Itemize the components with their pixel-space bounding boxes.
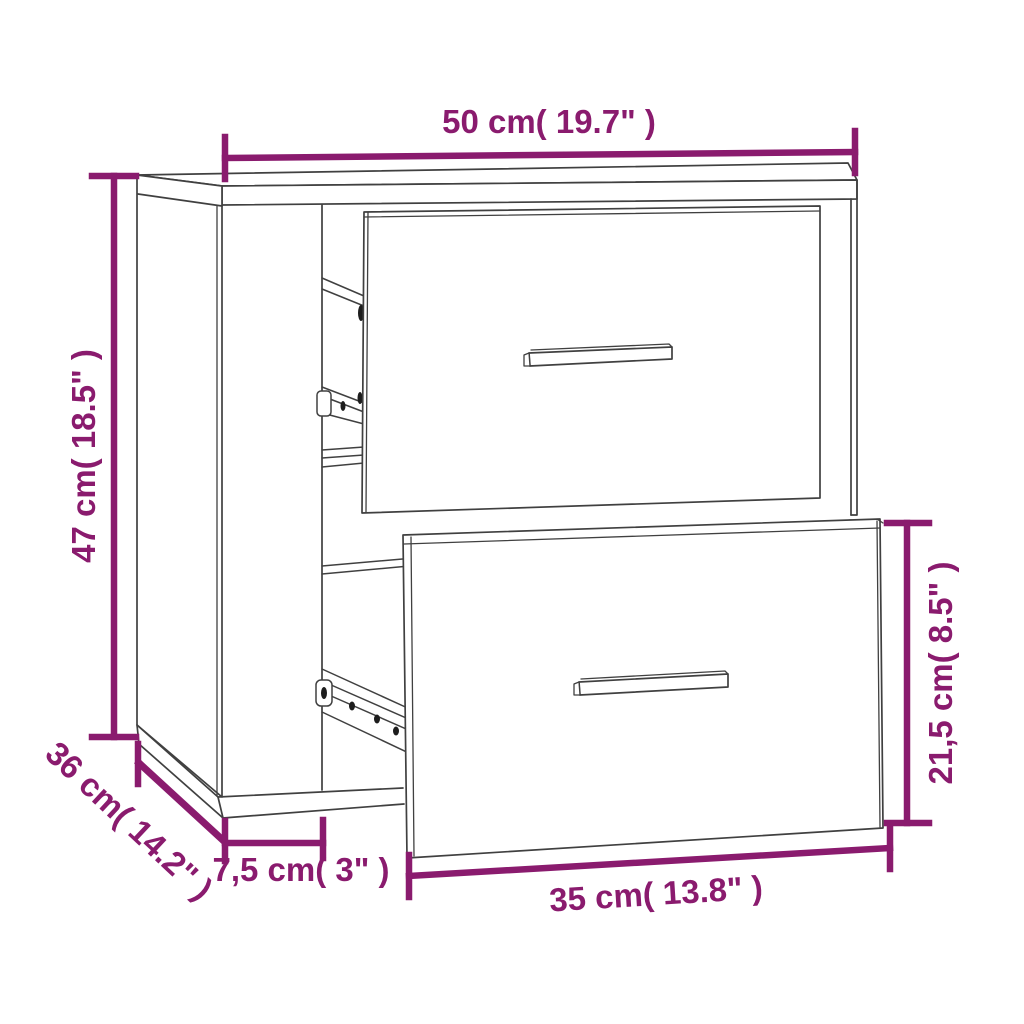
dimension-label-side-offset: 7,5 cm( 3" ): [212, 851, 389, 889]
slide-hole: [374, 715, 380, 724]
slide-roller: [321, 687, 327, 699]
bay-ledge-line: [322, 463, 364, 467]
bay-ledge-line: [322, 455, 364, 458]
slide-bracket: [317, 391, 331, 416]
top-drawer-handle-cap: [524, 353, 530, 366]
bottom-drawer-handle-cap: [574, 682, 580, 695]
dimension-label-overall-width: 50 cm( 19.7" ): [442, 103, 656, 141]
top-drawer: [362, 206, 820, 513]
dimension-label-drawer-height: 21,5 cm( 8.5" ): [922, 562, 960, 785]
dimension-diagram: 50 cm( 19.7" ) 47 cm( 18.5" ) 36 cm( 14.…: [0, 0, 1024, 1024]
slide-roller: [358, 392, 363, 404]
slide-hole: [393, 727, 399, 736]
bottom-drawer: [403, 519, 883, 858]
cabinet-bottom-front-edge-bottom: [223, 804, 404, 818]
top-slide-rail-line: [322, 289, 364, 306]
cabinet-right-edge-outer: [851, 180, 857, 515]
cabinet-left-panel: [137, 175, 222, 797]
slide-hole: [349, 702, 355, 711]
slide-hole: [341, 401, 346, 411]
bottom-slide-rail-line: [322, 669, 412, 710]
bay-ledge-line: [322, 447, 364, 450]
dim-line: [225, 152, 855, 158]
dimension-label-overall-height: 47 cm( 18.5" ): [65, 349, 103, 563]
cabinet-bottom-front-edge-top: [218, 788, 403, 797]
top-slide-rail-line: [322, 278, 364, 296]
